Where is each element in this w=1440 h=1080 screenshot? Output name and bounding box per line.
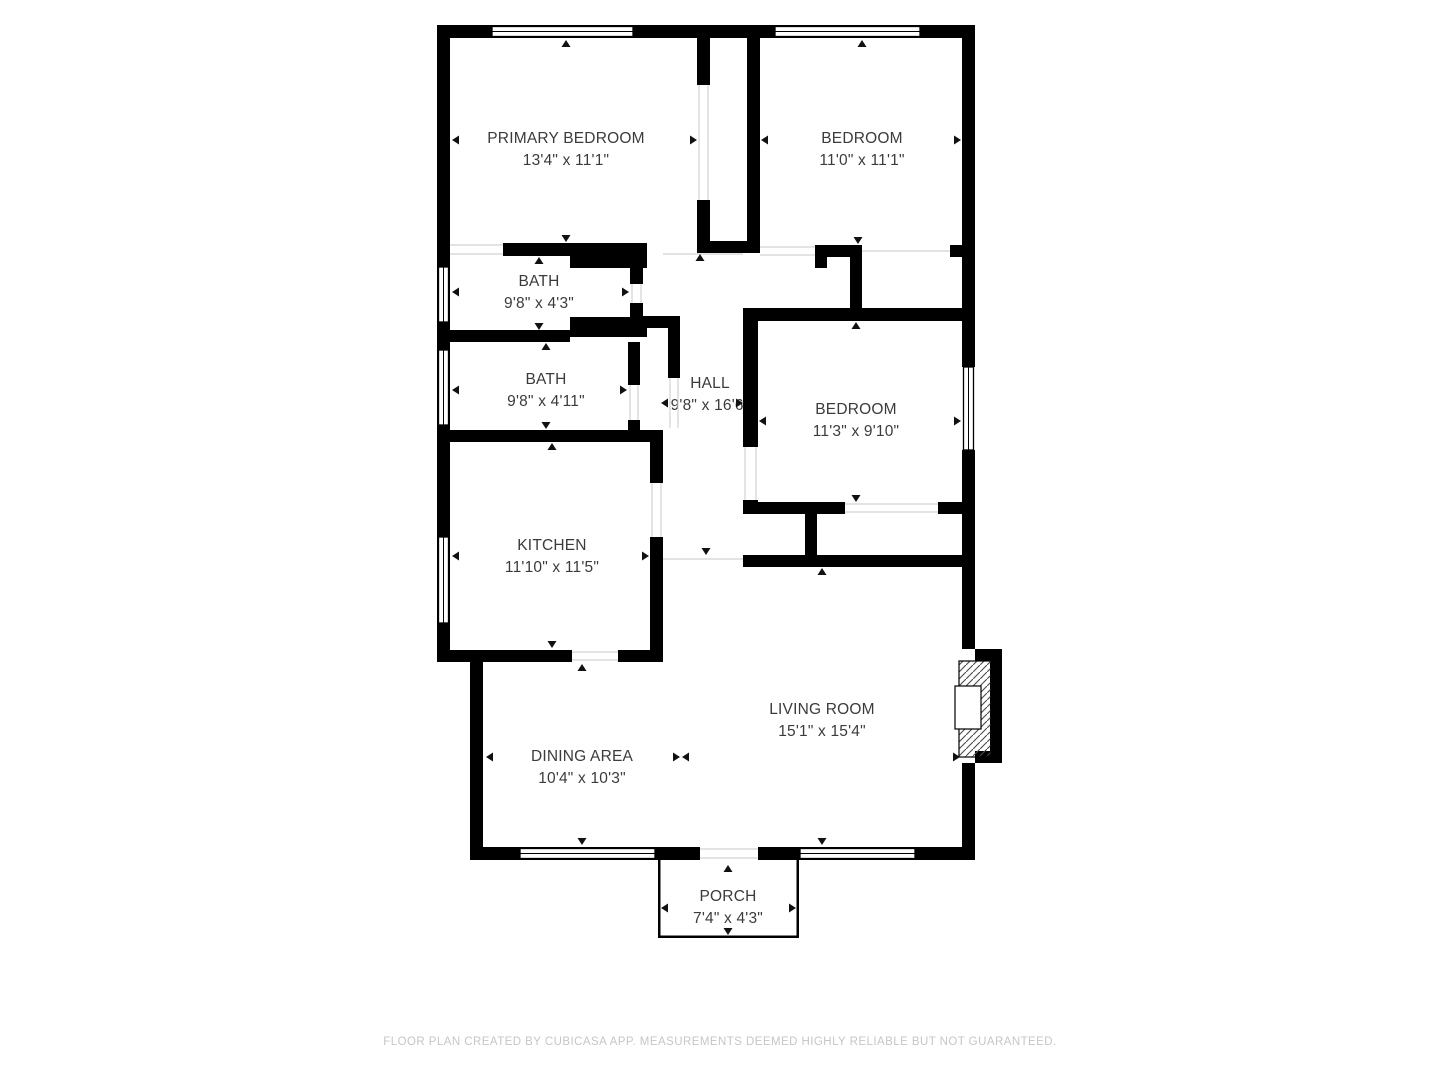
wall-segment [975,649,1002,661]
room-label-dining-area: DINING AREA 10'4" x 10'3" [531,746,633,789]
dimension-marker-icon [852,495,861,502]
wall-segment [630,303,643,319]
dimension-marker-icon [452,136,459,145]
room-dims: 9'8" x 4'3" [504,293,574,315]
dimension-marker-icon [542,422,551,429]
room-dims: 11'3" x 9'10" [813,421,899,443]
wall-segment [962,763,975,860]
room-label-bedroom-middle: BEDROOM 11'3" x 9'10" [813,399,899,442]
room-label-bath-lower: BATH 9'8" x 4'11" [507,369,585,412]
room-label-porch: PORCH 7'4" x 4'3" [693,886,763,929]
room-label-living-room: LIVING ROOM 15'1" x 15'4" [769,699,875,742]
wall-segment [747,38,760,253]
room-dims: 11'0" x 11'1" [819,150,904,172]
room-label-hall: HALL 9'8" x 16'6" [671,373,750,416]
room-name: PORCH [693,886,763,908]
fireplace-firebox [955,686,981,729]
dimension-marker-icon [789,904,796,913]
room-label-bath-upper: BATH 9'8" x 4'3" [504,271,574,314]
wall-segment [938,502,962,514]
porch-wall-segment [658,860,661,938]
door-opening [700,846,758,861]
dimension-marker-icon [486,753,493,762]
room-label-primary-bedroom: PRIMARY BEDROOM 13'4" x 11'1" [487,128,644,171]
wall-segment [643,316,680,328]
wall-segment [628,420,640,432]
floor-plan: PRIMARY BEDROOM 13'4" x 11'1" BEDROOM 11… [0,0,1440,1080]
wall-segment [437,430,663,442]
window [775,27,920,37]
room-dims: 7'4" x 4'3" [693,908,763,930]
room-name: KITCHEN [505,535,599,557]
window [520,849,655,859]
wall-segment [437,25,975,38]
window [800,849,915,859]
dimension-marker-icon [622,288,629,297]
wall-segment [570,317,647,337]
wall-segment [618,650,663,662]
wall-segment [743,500,758,514]
room-dims: 13'4" x 11'1" [487,150,644,172]
dimension-marker-icon [702,548,711,555]
dimension-marker-icon [759,417,766,426]
room-name: DINING AREA [531,746,633,768]
dimension-marker-icon [858,40,867,47]
wall-segment [975,751,1002,763]
wall-segment [743,308,962,321]
room-name: BEDROOM [813,399,899,421]
room-label-kitchen: KITCHEN 11'10" x 11'5" [505,535,599,578]
dimension-marker-icon [682,753,689,762]
dimension-marker-icon [673,753,680,762]
dimension-marker-icon [562,235,571,242]
dimension-marker-icon [548,641,557,648]
dimension-marker-icon [953,753,960,762]
wall-segment [743,555,975,567]
room-name: BATH [507,369,585,391]
fireplace-icon [959,661,991,757]
window [439,537,449,623]
room-dims: 11'10" x 11'5" [505,557,599,579]
wall-segment [470,847,975,860]
room-name: LIVING ROOM [769,699,875,721]
room-name: BEDROOM [819,128,904,150]
wall-segment [950,245,962,257]
wall-segment [805,514,817,558]
wall-segment [990,649,1002,763]
dimension-marker-icon [642,552,649,561]
dimension-marker-icon [690,136,697,145]
room-name: BATH [504,271,574,293]
window [439,350,449,425]
dimension-marker-icon [724,928,733,935]
dimension-marker-icon [452,552,459,561]
dimension-marker-icon [578,838,587,845]
dimension-marker-icon [954,417,961,426]
dimension-marker-icon [578,664,587,671]
dimension-marker-icon [852,322,861,329]
wall-segment [850,257,862,310]
wall-segment [630,256,643,284]
window [964,367,974,450]
footer-disclaimer: FLOOR PLAN CREATED BY CUBICASA APP. MEAS… [383,1036,1056,1048]
wall-segment [697,200,710,253]
wall-segment [815,257,827,268]
room-name: PRIMARY BEDROOM [487,128,644,150]
room-dims: 9'8" x 16'6" [671,395,750,417]
dimension-marker-icon [620,386,627,395]
dimension-marker-icon [542,343,551,350]
wall-segment [503,243,647,256]
dimension-marker-icon [761,136,768,145]
wall-segment [743,502,845,514]
window [492,27,633,37]
wall-segment [962,25,975,367]
wall-segment [470,650,483,860]
dimension-marker-icon [452,386,459,395]
wall-segment [450,330,570,342]
wall-segment [697,38,710,85]
wall-segment [697,241,760,253]
dimension-marker-icon [562,40,571,47]
dimension-marker-icon [724,865,733,872]
dimension-marker-icon [452,288,459,297]
porch-wall-segment [658,936,799,939]
dimension-marker-icon [818,838,827,845]
wall-segment [650,442,663,483]
room-name: HALL [671,373,750,395]
wall-segment [437,25,450,662]
window [439,267,449,322]
wall-segment [437,650,572,662]
room-dims: 15'1" x 15'4" [769,721,875,743]
dimension-marker-icon [661,399,668,408]
porch-wall-segment [797,860,800,938]
room-dims: 9'8" x 4'11" [507,391,585,413]
wall-segment [650,537,663,650]
wall-segment [628,342,640,385]
wall-segment [668,328,680,378]
dimension-marker-icon [696,254,705,261]
dimension-marker-icon [818,568,827,575]
dimension-marker-icon [854,237,863,244]
dimension-marker-icon [548,443,557,450]
wall-segment [815,245,862,257]
wall-segment [962,450,975,649]
dimension-marker-icon [661,904,668,913]
room-dims: 10'4" x 10'3" [531,768,633,790]
room-label-bedroom-top-right: BEDROOM 11'0" x 11'1" [819,128,904,171]
dimension-marker-icon [535,257,544,264]
dimension-marker-icon [535,323,544,330]
wall-segment [570,252,647,268]
dimension-marker-icon [954,136,961,145]
